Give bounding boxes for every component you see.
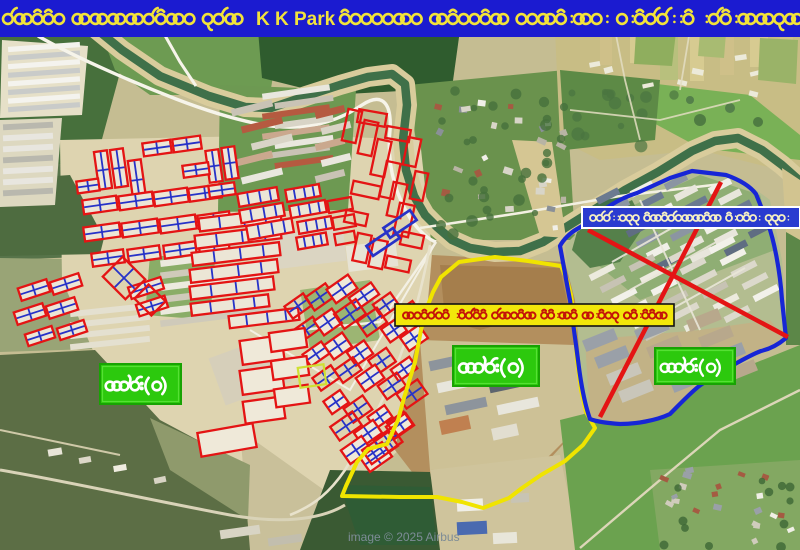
svg-text:K K Park: K K Park bbox=[256, 9, 336, 30]
svg-text:image © 2025 Airbus: image © 2025 Airbus bbox=[348, 530, 460, 544]
